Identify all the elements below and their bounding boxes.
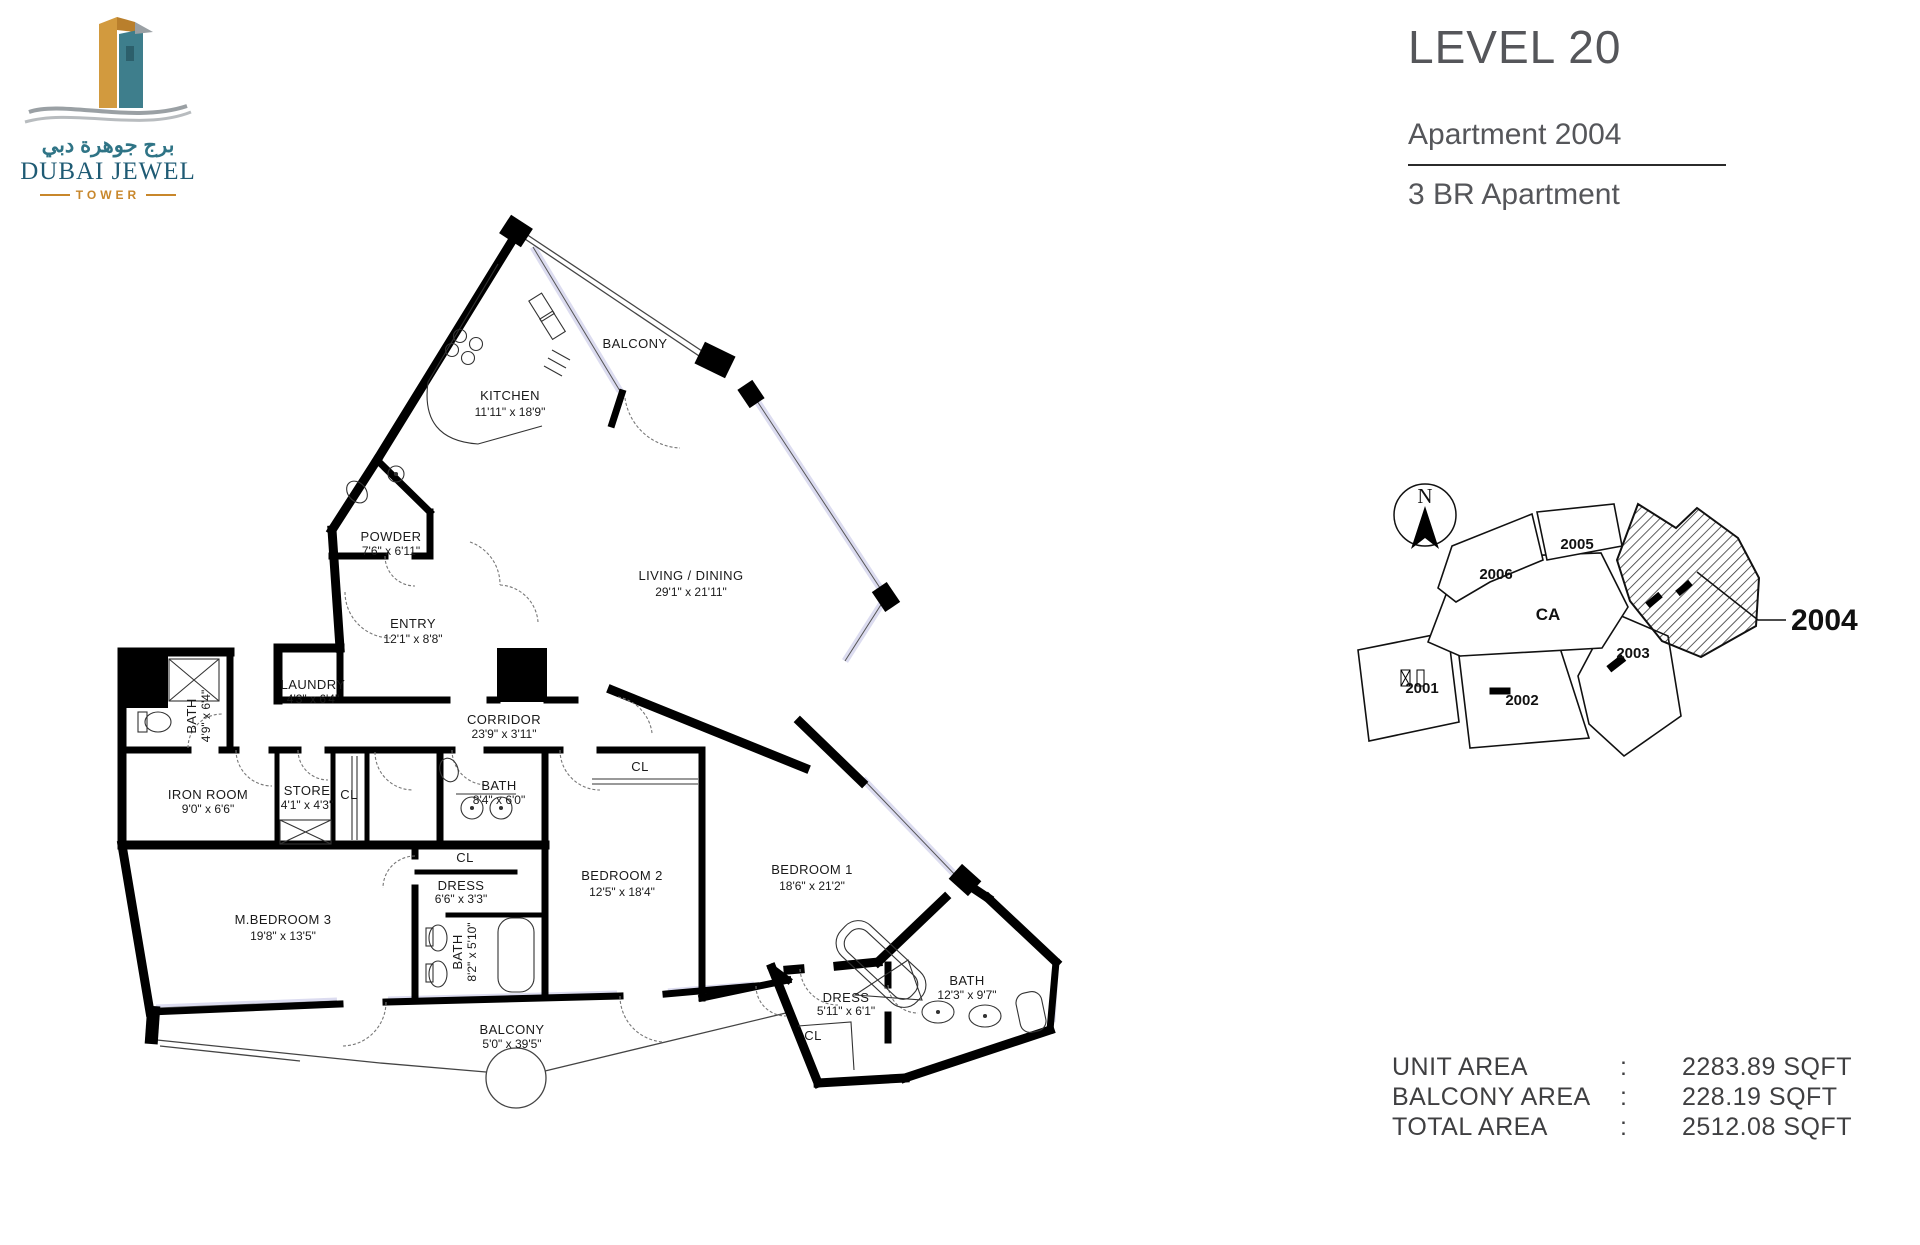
room-label: KITCHEN bbox=[480, 388, 540, 403]
room-label: CL bbox=[804, 1028, 821, 1043]
bottom-balcony-railing bbox=[157, 1012, 790, 1108]
unit-area-label: UNIT AREA bbox=[1392, 1053, 1620, 1082]
north-arrow: N bbox=[1394, 484, 1456, 549]
room-label: DRESS bbox=[438, 878, 485, 893]
keyplan-label-2006: 2006 bbox=[1479, 566, 1512, 583]
walls-thin bbox=[277, 750, 543, 915]
room-dims: 19'8" x 13'5" bbox=[250, 929, 316, 943]
room-label: CL bbox=[456, 850, 473, 865]
room-dims: 12'1" x 8'8" bbox=[383, 632, 442, 646]
room-label: BEDROOM 2 bbox=[581, 868, 663, 883]
keyplan-label-2002: 2002 bbox=[1505, 692, 1538, 709]
unit-area-row: UNIT AREA : 2283.89 SQFT bbox=[1392, 1052, 1852, 1082]
door-arcs bbox=[188, 398, 918, 1046]
room-label: BATH bbox=[481, 778, 516, 793]
room-dims: 7'6" x 6'11" bbox=[362, 544, 420, 558]
room-label: LAUNDRY bbox=[281, 677, 346, 692]
room-dims: 5'11" x 6'1" bbox=[817, 1004, 875, 1018]
room-label: CL bbox=[631, 759, 648, 774]
total-area-value: 2512.08 SQFT bbox=[1682, 1113, 1852, 1142]
room-label: ENTRY bbox=[390, 616, 436, 631]
balcony-area-label: BALCONY AREA bbox=[1392, 1083, 1620, 1112]
keyplan-label-2003: 2003 bbox=[1616, 645, 1649, 662]
room-label: BEDROOM 1 bbox=[771, 862, 853, 877]
keyplan-label-ca: CA bbox=[1536, 605, 1561, 624]
room-label: BATH bbox=[184, 698, 199, 733]
balcony-area-row: BALCONY AREA : 228.19 SQFT bbox=[1392, 1082, 1852, 1112]
total-area-label: TOTAL AREA bbox=[1392, 1113, 1620, 1142]
keyplan-highlight-label: 2004 bbox=[1791, 604, 1858, 637]
room-label: STORE bbox=[284, 783, 331, 798]
north-label: N bbox=[1417, 484, 1432, 508]
room-dims: 8'2" x 5'10" bbox=[465, 922, 479, 981]
window-bands bbox=[156, 247, 1055, 1022]
room-dims: 18'6" x 21'2" bbox=[779, 879, 845, 893]
room-label: IRON ROOM bbox=[168, 787, 248, 802]
area-summary-table: UNIT AREA : 2283.89 SQFT BALCONY AREA : … bbox=[1392, 1052, 1852, 1142]
room-dims: 12'3" x 9'7" bbox=[937, 988, 996, 1002]
room-label: BALCONY bbox=[603, 336, 668, 351]
unit-area-value: 2283.89 SQFT bbox=[1682, 1053, 1852, 1082]
floorplan-page: { "header": { "level": "LEVEL 20", "apar… bbox=[0, 0, 1920, 1245]
room-dims: 5'0" x 39'5" bbox=[482, 1037, 541, 1051]
keyplan-label-2005: 2005 bbox=[1560, 536, 1593, 553]
room-label: CL bbox=[340, 787, 357, 802]
room-dims: 4'3" x 6'4" bbox=[287, 692, 339, 706]
room-labels: KITCHEN BALCONY LIVING / DINING POWDER E… bbox=[168, 336, 997, 1051]
room-label: LIVING / DINING bbox=[639, 568, 744, 583]
room-dims: 6'6" x 3'3" bbox=[435, 892, 487, 906]
room-label: BATH bbox=[450, 934, 465, 969]
room-label: POWDER bbox=[361, 529, 422, 544]
room-dims: 9'0" x 6'6" bbox=[182, 802, 234, 816]
room-dims: 29'1" x 21'11" bbox=[655, 585, 727, 599]
room-dims: 23'9" x 3'11" bbox=[472, 727, 537, 741]
room-label: BALCONY bbox=[480, 1022, 545, 1037]
keyplan-label-2001: 2001 bbox=[1405, 680, 1438, 697]
walls-thick bbox=[122, 228, 1056, 1083]
balcony-area-value: 228.19 SQFT bbox=[1682, 1083, 1838, 1112]
room-dims: 8'4" x 6'0" bbox=[473, 793, 525, 807]
room-label: DRESS bbox=[823, 990, 870, 1005]
room-label: BATH bbox=[949, 973, 984, 988]
room-dims: 4'1" x 4'3" bbox=[281, 798, 333, 812]
room-dims: 11'11" x 18'9" bbox=[475, 405, 546, 419]
room-dims: 12'5" x 18'4" bbox=[589, 885, 655, 899]
room-label: M.BEDROOM 3 bbox=[235, 912, 332, 927]
room-dims: 4'9" x 6'4" bbox=[199, 690, 213, 742]
total-area-row: TOTAL AREA : 2512.08 SQFT bbox=[1392, 1112, 1852, 1142]
room-label: CORRIDOR bbox=[467, 712, 541, 727]
